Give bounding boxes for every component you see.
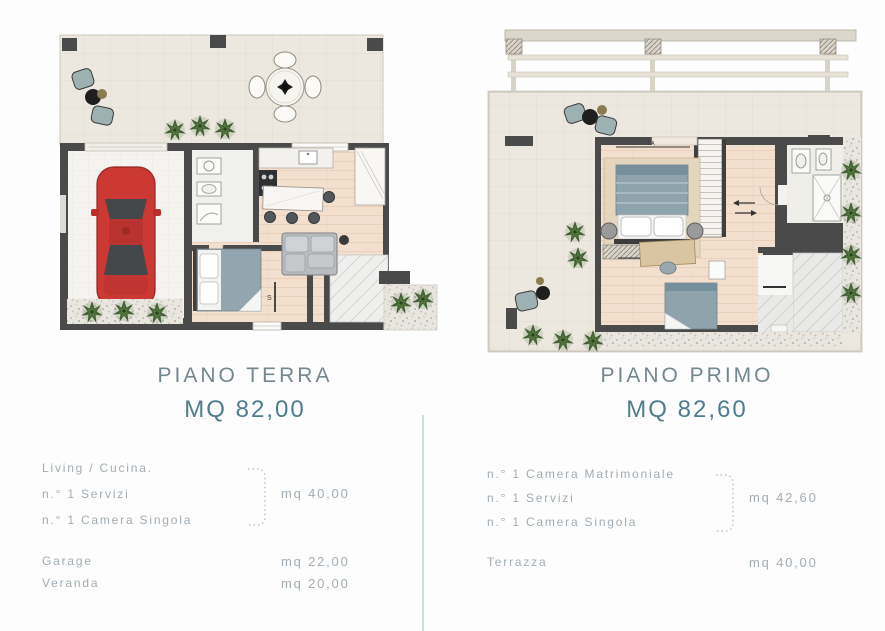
piano-terra-floor-plan: S xyxy=(57,27,439,333)
piano-primo-floor-plan: LA LA xyxy=(483,25,873,357)
floorplan-page: S xyxy=(0,0,885,631)
right-room-matrimoniale: n.° 1 Camera Matrimoniale xyxy=(487,467,675,481)
right-extra-terrazza-area: mq 40,00 xyxy=(749,555,818,570)
right-room-camera-singola: n.° 1 Camera Singola xyxy=(487,515,637,529)
left-room-servizi: n.° 1 Servizi xyxy=(42,487,130,501)
right-grouped-area: mq 42,60 xyxy=(749,490,818,505)
stool-icon xyxy=(324,192,335,203)
dining-table xyxy=(263,186,324,211)
svg-text:S: S xyxy=(267,295,272,302)
wall-stub xyxy=(379,271,410,284)
group-bracket-icon xyxy=(714,472,738,534)
svg-text:LA: LA xyxy=(648,141,655,147)
laundry-fixtures xyxy=(197,158,221,224)
left-extra-garage-area: mq 22,00 xyxy=(281,554,350,569)
group-bracket-icon xyxy=(246,466,270,528)
single-bed xyxy=(193,249,261,311)
stool-icon xyxy=(309,213,320,224)
left-floor-title: PIANO TERRA xyxy=(120,364,370,388)
left-floor-area: MQ 82,00 xyxy=(120,396,370,424)
right-floor-title: PIANO PRIMO xyxy=(562,364,812,388)
right-floor-area: MQ 82,60 xyxy=(562,396,812,424)
left-extra-veranda: Veranda xyxy=(42,576,99,590)
pergola xyxy=(505,30,856,94)
gravel-strip-bottom xyxy=(595,332,843,347)
right-extra-terrazza: Terrazza xyxy=(487,555,547,569)
left-extra-garage: Garage xyxy=(42,554,93,568)
right-room-servizi: n.° 1 Servizi xyxy=(487,491,575,505)
left-room-camera-singola: n.° 1 Camera Singola xyxy=(42,513,192,527)
left-extra-veranda-area: mq 20,00 xyxy=(281,576,350,591)
garage-car xyxy=(91,167,161,307)
left-grouped-area: mq 40,00 xyxy=(281,486,350,501)
column-divider xyxy=(422,415,424,631)
left-room-living: Living / Cucina. xyxy=(42,461,153,475)
stool-icon xyxy=(265,212,276,223)
stool-icon xyxy=(287,213,298,224)
